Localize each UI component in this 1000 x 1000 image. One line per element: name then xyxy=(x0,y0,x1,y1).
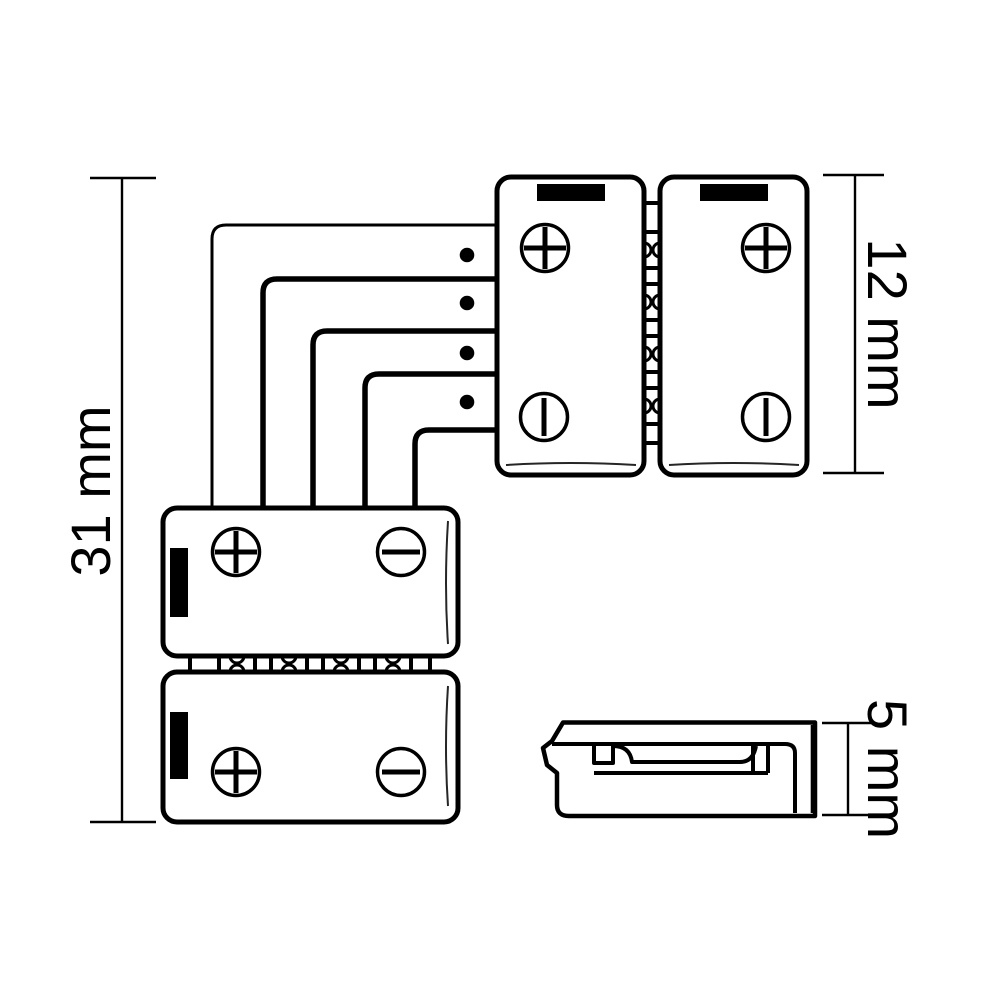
plus-icon xyxy=(522,225,569,272)
minus-icon xyxy=(743,394,790,441)
minus-icon xyxy=(378,749,425,796)
wire-dot-3 xyxy=(460,346,475,361)
housing-outline xyxy=(543,723,815,817)
connector-block-top xyxy=(163,508,458,656)
plus-icon xyxy=(743,225,790,272)
wire-dot-4 xyxy=(460,395,475,410)
solder-pad xyxy=(700,184,768,201)
wire-dot-1 xyxy=(460,248,475,263)
dimension-label-31mm: 31 mm xyxy=(59,405,122,576)
minus-icon xyxy=(521,394,568,441)
dimension-label-12mm: 12 mm xyxy=(856,238,919,409)
plus-icon xyxy=(213,749,260,796)
side-profile-view xyxy=(543,723,815,817)
plus-icon xyxy=(213,529,260,576)
wire-dot-2 xyxy=(460,296,475,311)
dimension-label-5mm: 5 mm xyxy=(856,699,919,839)
connector-technical-drawing: 31 mm xyxy=(0,0,1000,1000)
solder-pad xyxy=(170,548,188,617)
minus-icon xyxy=(378,529,425,576)
background xyxy=(0,0,1000,1000)
connector-block-left xyxy=(497,177,644,475)
diagram-canvas: 31 mm xyxy=(0,0,1000,1000)
solder-pad xyxy=(537,184,605,201)
connector-block-bottom xyxy=(163,672,458,822)
solder-pad xyxy=(170,712,188,779)
